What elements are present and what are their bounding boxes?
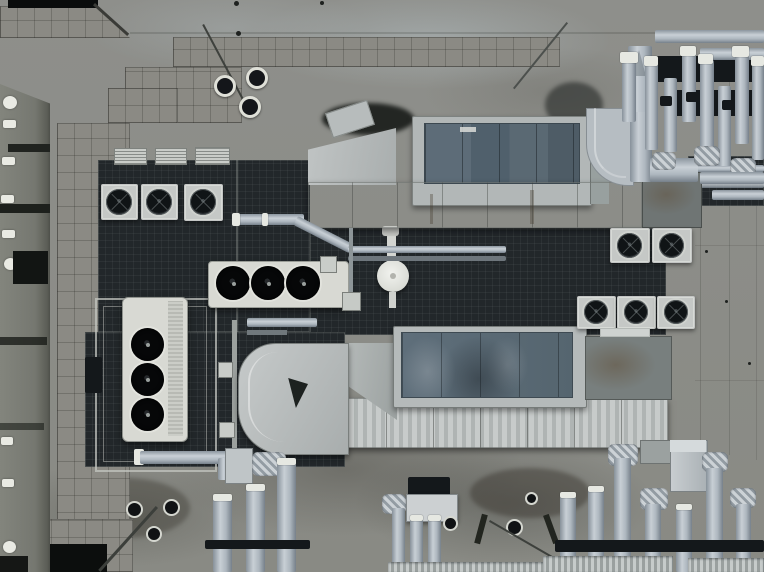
pipe-cap <box>751 56 764 66</box>
pipe-valve <box>722 100 734 110</box>
duct-rust-streak <box>530 190 534 224</box>
fan-unit-small <box>652 228 692 263</box>
roof-drain <box>239 96 261 118</box>
pipe-coupling-box <box>320 256 337 273</box>
pipe-cap <box>698 54 713 64</box>
condenser-coil-strip <box>168 301 183 436</box>
rooftop-aerial-photo: Aerial top-down photograph of a building… <box>0 0 764 572</box>
pipe-vertical <box>700 60 714 148</box>
valve-box <box>218 362 233 378</box>
fan-unit-small <box>577 296 616 329</box>
pipe-collar <box>560 492 576 498</box>
anchor-dot <box>705 250 708 253</box>
pipe-coupling <box>262 213 268 226</box>
pipe-collar <box>277 458 296 465</box>
pipe-horizontal <box>140 451 228 464</box>
duct-bottom-edge <box>388 562 560 572</box>
fan-grille-icon <box>190 189 216 215</box>
pipe-collar <box>213 494 232 501</box>
wall-equipment-dark <box>13 251 48 284</box>
pipe-cap <box>620 52 638 63</box>
pipe-collar <box>246 484 265 491</box>
paver-walkway-step <box>108 88 178 123</box>
pipe-collar <box>410 515 423 521</box>
mushroom-vent-hub <box>390 273 396 279</box>
pipe-vertical <box>735 52 749 144</box>
flex-elbow <box>652 152 676 170</box>
pipe-horizontal <box>247 318 317 327</box>
condenser-fan-icon <box>131 398 164 431</box>
pipe-horizontal <box>700 172 764 184</box>
pipe-collar <box>676 504 692 510</box>
roof-drain <box>525 492 538 505</box>
pipe-horizontal <box>712 190 764 200</box>
roof-dot <box>234 1 239 6</box>
roof-drain <box>126 501 143 518</box>
wall-vent <box>2 479 14 487</box>
duct-rust-box <box>585 336 672 400</box>
roof-dot <box>320 1 324 5</box>
paver-walkway-band <box>173 37 560 67</box>
pipe-riser-thin <box>349 228 353 292</box>
elevated-valve-box-top <box>670 440 706 452</box>
pipe-cap <box>680 46 696 56</box>
flex-elbow <box>694 146 720 166</box>
refrigerant-pipe <box>348 246 506 253</box>
fan-unit-small <box>141 184 178 220</box>
wall-vent <box>1 195 14 203</box>
pipe-vertical <box>752 64 764 160</box>
fan-unit-small <box>610 228 650 263</box>
louver-vent <box>155 148 187 165</box>
duct-drop-box <box>225 448 253 484</box>
condenser-fan-icon <box>251 266 285 300</box>
anchor-dot <box>748 362 751 365</box>
pipe-vertical <box>682 52 696 122</box>
fan-grille-icon <box>146 189 172 215</box>
roof-dot <box>236 31 241 36</box>
wall-beam <box>0 337 47 345</box>
fan-grille-icon <box>659 233 684 258</box>
wall-vent-round <box>3 541 16 553</box>
roof-drain <box>246 67 268 89</box>
fan-grille-icon <box>106 189 132 215</box>
pipe-cap <box>732 46 749 57</box>
support-bracket <box>474 514 488 545</box>
insulated-pipe <box>246 488 265 572</box>
wall-vent <box>2 230 15 238</box>
condenser-fan-icon <box>216 266 250 300</box>
wall-vent-round <box>3 96 17 109</box>
valve-box <box>342 292 361 311</box>
anchor-dot <box>725 300 728 303</box>
fan-unit-small <box>101 184 138 220</box>
concrete-seam <box>695 245 764 246</box>
duct-bend-seam <box>248 352 338 442</box>
insulated-pipe <box>614 458 631 572</box>
pipe-valve <box>660 96 672 106</box>
fan-grille-icon <box>664 300 688 324</box>
paver-walkway-top-left <box>0 6 130 38</box>
pipe-cap <box>644 56 658 66</box>
air-handler-upper-panels <box>424 123 580 184</box>
electrical-box <box>85 357 102 393</box>
roof-drain <box>146 526 162 542</box>
condenser-fan-icon <box>131 328 164 361</box>
air-handler-lower-panels <box>401 332 573 398</box>
pipe-vertical <box>645 64 658 150</box>
roof-drain <box>163 499 180 516</box>
fan-unit-small <box>184 184 223 221</box>
pipe-horizontal-dark <box>247 330 287 335</box>
valve-box <box>219 422 235 438</box>
wall-shadow-dark <box>0 556 28 572</box>
pipe-valve <box>686 92 698 102</box>
roof-drain <box>443 516 458 531</box>
refrigerant-pipe-dark <box>348 256 506 261</box>
roof-edge-dark <box>8 0 98 8</box>
pipe-rack-rail <box>555 540 764 552</box>
insulated-pipe <box>706 468 723 572</box>
duct-transition <box>308 128 396 185</box>
pipe-rack-rail <box>205 540 310 549</box>
wall-vent <box>3 120 16 128</box>
panel-label <box>460 127 476 132</box>
wall-beam <box>0 204 50 213</box>
vent-stem <box>389 292 396 308</box>
condenser-fan-icon <box>286 266 320 300</box>
louver-vent <box>195 147 230 165</box>
concrete-seam <box>695 380 764 381</box>
fan-grille-icon <box>624 300 648 324</box>
insulated-pipe <box>213 498 232 572</box>
pipe-vertical <box>664 78 677 152</box>
insulated-pipe <box>277 462 296 572</box>
pipe-collar <box>428 515 441 521</box>
duct-bottom-edge <box>543 556 673 572</box>
wall-beam <box>8 144 50 152</box>
pipe-collar <box>588 486 604 492</box>
fan-grille-icon <box>617 233 642 258</box>
fan-unit-small <box>617 296 656 329</box>
pipe-coupling <box>232 213 240 226</box>
wall-vent <box>2 157 15 165</box>
fan-grille-icon <box>584 300 608 324</box>
duct-rust-streak <box>430 194 433 224</box>
fan-unit-small <box>657 296 695 329</box>
unit-label-strip <box>600 328 650 337</box>
duct-bottom-edge <box>688 558 764 572</box>
platform-rail-pipe <box>232 320 237 468</box>
pipe-horizontal <box>655 30 764 43</box>
main-duct-upper <box>308 182 642 228</box>
condenser-fan-icon <box>131 363 164 396</box>
pipe-vertical <box>622 60 636 122</box>
wall-vent <box>1 437 13 445</box>
roof-drain <box>214 75 236 97</box>
wall-beam <box>0 423 44 430</box>
louver-vent <box>114 148 147 165</box>
